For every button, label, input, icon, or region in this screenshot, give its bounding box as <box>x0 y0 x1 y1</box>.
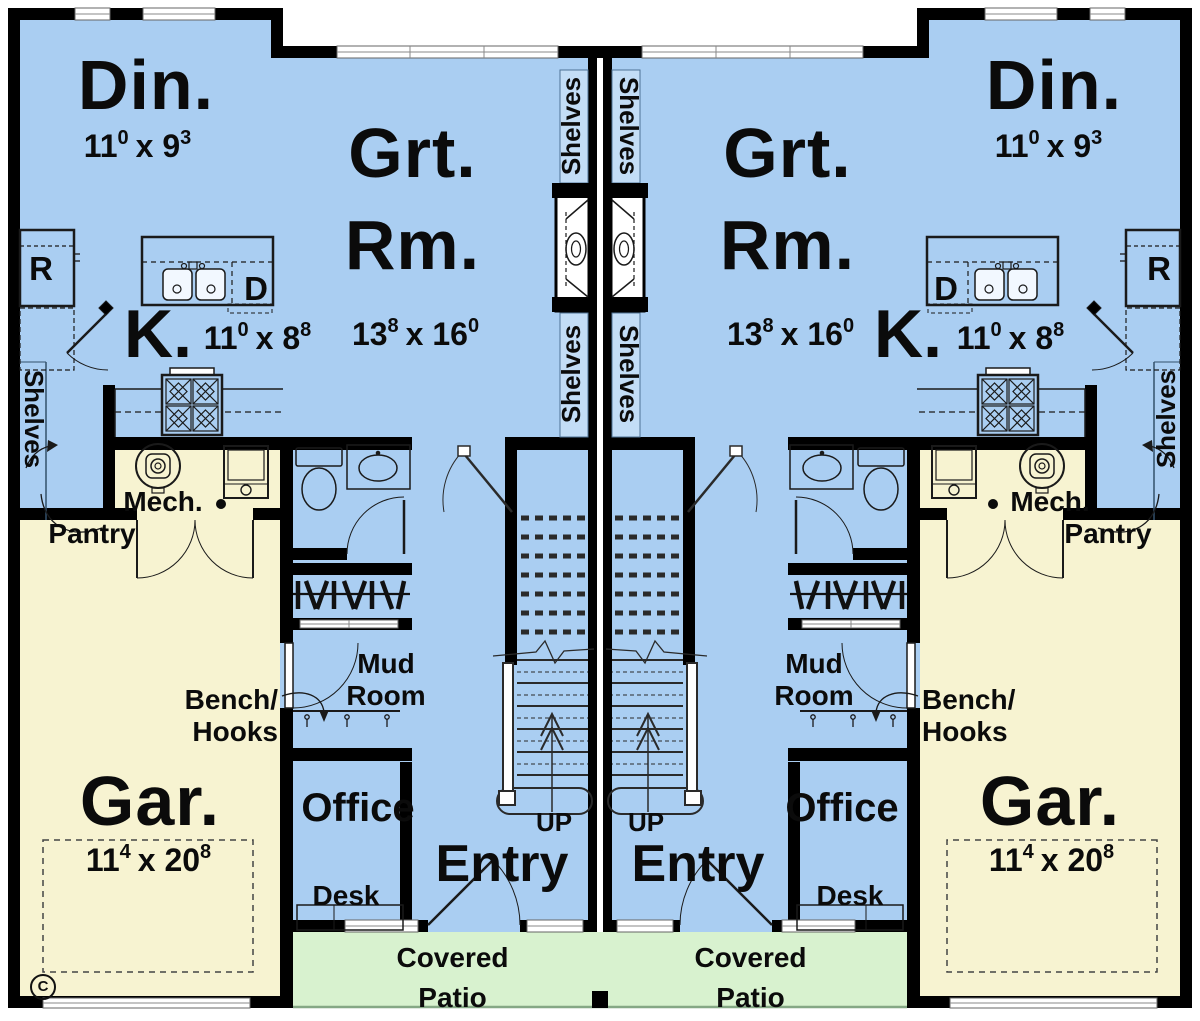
room-label-great-2-left: Rm. <box>330 210 495 280</box>
room-dim-garage-right: 114x 208 <box>969 844 1134 876</box>
room-label-pantry-right: Pantry <box>1058 520 1158 548</box>
room-label-great-2-right: Rm. <box>705 210 870 280</box>
dishwasher-label-right: D <box>924 272 968 305</box>
room-label-dining-right: Din. <box>966 50 1142 120</box>
shelves-label-upper-right: Shelves <box>612 70 642 182</box>
party-wall-gap <box>597 58 603 932</box>
room-label-garage-left: Gar. <box>62 766 238 836</box>
patio-label-2-left: Patio <box>380 984 525 1012</box>
shelves-label-pantry-right: Shelves <box>1153 363 1183 475</box>
patio-label-2-right: Patio <box>678 984 823 1012</box>
room-dim-dining-right: 110x 93 <box>966 130 1131 162</box>
room-label-office-right: Office <box>777 788 907 828</box>
room-label-garage-right: Gar. <box>962 766 1138 836</box>
room-label-mech-left: Mech. <box>113 488 213 516</box>
room-label-mud-left: MudRoom <box>330 648 442 712</box>
room-dim-garage-left: 114x 208 <box>66 844 231 876</box>
room-dim-dining-left: 110x 93 <box>55 130 220 162</box>
room-label-mech-right: Mech. <box>1000 488 1100 516</box>
shelves-label-pantry-left: Shelves <box>17 363 47 475</box>
room-dim-kitchen-left: 110x 88 <box>195 322 320 354</box>
bench-hooks-label-left: Bench/Hooks <box>166 684 278 748</box>
dishwasher-label-left: D <box>234 272 278 305</box>
shelves-label-lower-right: Shelves <box>612 318 642 430</box>
copyright-icon: C <box>30 974 56 1000</box>
room-label-dining-left: Din. <box>58 50 234 120</box>
room-label-great-1-right: Grt. <box>705 118 870 188</box>
patio-label-1-left: Covered <box>380 944 525 972</box>
shelves-label-upper-left: Shelves <box>558 70 588 182</box>
room-label-kitchen-right: K. <box>874 300 942 368</box>
room-label-office-left: Office <box>293 788 423 828</box>
leader-dot-mech-right <box>988 499 998 509</box>
up-label-right: UP <box>621 809 671 835</box>
patio-label-1-right: Covered <box>678 944 823 972</box>
room-label-pantry-left: Pantry <box>42 520 142 548</box>
room-label-great-1-left: Grt. <box>330 118 495 188</box>
up-label-left: UP <box>529 809 579 835</box>
desk-label-right: Desk <box>808 882 892 910</box>
room-dim-great-left: 138x 160 <box>333 318 498 350</box>
room-label-entry-right: Entry <box>623 838 773 890</box>
bench-hooks-label-right: Bench/Hooks <box>922 684 1034 748</box>
refrigerator-label-right: R <box>1136 252 1182 285</box>
room-dim-great-right: 138x 160 <box>708 318 873 350</box>
room-label-kitchen-left: K. <box>124 300 192 368</box>
refrigerator-label-left: R <box>18 252 64 285</box>
room-label-mud-right: MudRoom <box>758 648 870 712</box>
patio-post <box>592 991 608 1008</box>
duplex-floor-plan: Din. 110x 93 Grt. Rm. 138x 160 K. 110x 8… <box>0 0 1200 1021</box>
leader-dot-mech-left <box>216 499 226 509</box>
room-dim-kitchen-right: 110x 88 <box>948 322 1073 354</box>
desk-label-left: Desk <box>304 882 388 910</box>
shelves-label-lower-left: Shelves <box>558 318 588 430</box>
room-label-entry-left: Entry <box>427 838 577 890</box>
